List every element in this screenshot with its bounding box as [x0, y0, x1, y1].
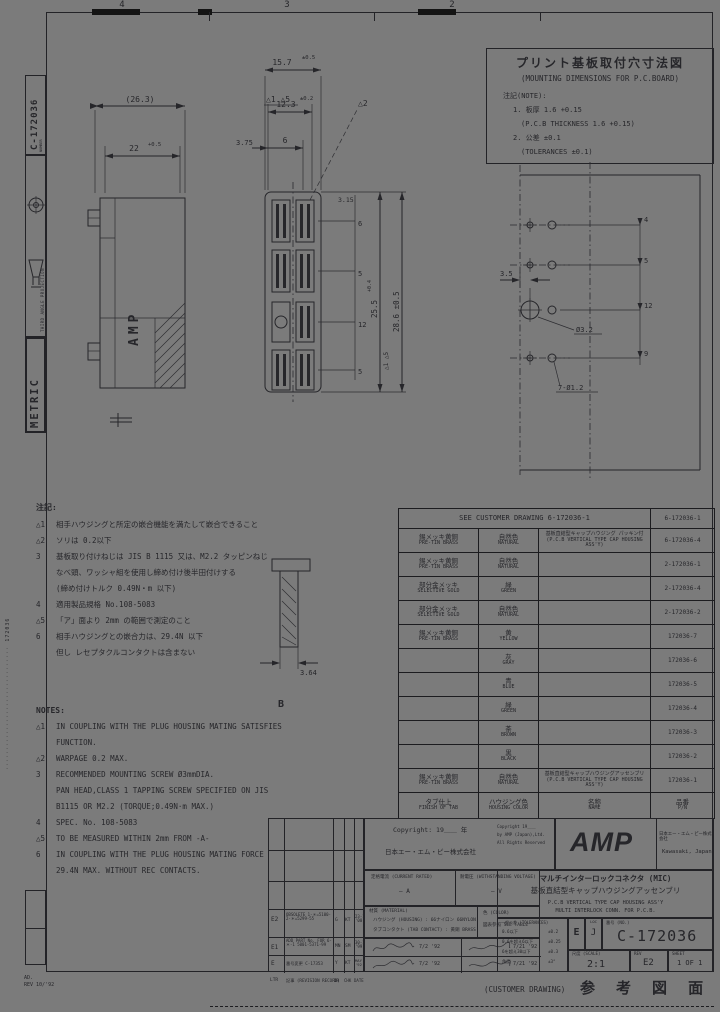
grid-col-3: 3: [281, 1, 293, 11]
copyright-cell: Copyright: 19＿＿ 年 日本エー・エム・ピー株式会社 Copyrig…: [364, 818, 555, 870]
svg-text:6: 6: [358, 220, 362, 228]
rev-desc: OBSOLETE 1-＊=5100- 2-＊=5299-55: [286, 913, 332, 922]
pcb-note-line1: 1. 板厚 1.6 +0.15: [513, 107, 582, 115]
pcb-note-title-jp: プリント基板取付穴寸法図: [487, 57, 713, 70]
svg-text:5: 5: [644, 257, 648, 265]
scale-label: 尺度 (SCALE): [572, 952, 601, 957]
title-en-1: P.C.B VERTICAL TYPE CAP HOUSING ASS'Y: [498, 901, 713, 907]
table-header-row: SEE CUSTOMER DRAWING 6-172036-1 6-172036…: [398, 509, 714, 529]
pcb-note-box: プリント基板取付穴寸法図 (MOUNTING DIMENSIONS FOR P.…: [486, 48, 714, 164]
tolerance-cell: 一般公差 (TOLERANCES) 0.6以下 ±0.2 0.6を超え6以下 ±…: [497, 918, 568, 972]
scale-value: 2:1: [587, 959, 605, 970]
tolerance-val: ±0.2: [548, 930, 558, 935]
rev-dr: MN: [335, 945, 340, 950]
table-row: 錫メッキ黄銅PRE-TIN BRASS 自然色NATURAL 基板直結型キャップ…: [398, 769, 714, 793]
edge-microfilm-code: ······························· 172036: [6, 230, 12, 770]
copyright-sub3: All Rights Reserved: [497, 841, 545, 846]
sheet-value: 1 OF 1: [677, 960, 702, 968]
rev-date-header: DATE: [354, 979, 364, 983]
dim-12-3: 12.3 ±0.2: [268, 96, 313, 190]
pcb-note-line2: (P.C.B THICKNESS 1.6 +0.15): [521, 121, 635, 129]
tolerance-row: 0.6以下: [502, 930, 518, 935]
loc-cell: LOC J: [585, 918, 602, 950]
svg-text:Ø3.2: Ø3.2: [576, 326, 593, 334]
connector-side-outline: AMP: [88, 198, 185, 388]
pcb-note-line3: 2. 公差 ±0.1: [513, 135, 561, 143]
loc-value: J: [586, 929, 601, 939]
plot-note-1: AD.: [24, 976, 33, 982]
svg-text:15.7: 15.7: [272, 58, 291, 67]
projection-label: THIRD ANGLE PROJECTION: [41, 162, 45, 332]
table-row: 灰GRAY 172036-6: [398, 649, 714, 673]
company-name-jp: 日本エー・エム・ピー株式会社: [659, 833, 713, 843]
svg-text:12.3: 12.3: [276, 100, 295, 109]
svg-text:22: 22: [129, 144, 139, 153]
rev-value: E2: [643, 959, 654, 969]
rev-ltr: E2: [271, 917, 278, 924]
table-row: 緑GREEN 172036-4: [398, 697, 714, 721]
svg-text:(26.3): (26.3): [126, 95, 155, 104]
copyright-sub2: by AMP (Japan),Ltd.: [497, 833, 545, 838]
amp-logo: AMP: [570, 828, 633, 858]
material-housing: ハウジング (HOUSING) : 66ナイロン 66NYLON: [373, 918, 476, 923]
metric-label: METRIC: [30, 340, 42, 428]
svg-text:7-Ø1.2: 7-Ø1.2: [558, 384, 583, 392]
view-front: 15.7 ±0.5 △1 △5 12.3 ±0.2 3.75 6 △2: [230, 50, 442, 480]
table-row: 青BLUE 172036-5: [398, 673, 714, 697]
notes-en-heading: NOTES:: [36, 706, 294, 715]
company-location: Kawasaki, Japan: [662, 849, 712, 855]
material-contact: タブコンタクト (TAB CONTACT) : 黄銅 BRASS: [373, 928, 476, 933]
number-cell: 番号 (NO.) C-172036: [602, 918, 714, 950]
drawing-number: C-172036: [617, 928, 697, 945]
svg-text:3.64: 3.64: [300, 669, 317, 677]
svg-text:±0.2: ±0.2: [300, 96, 313, 102]
rev-desc: 番号変更 C-17353: [286, 962, 323, 967]
pcb-note-label: 注記(NOTE):: [503, 93, 547, 101]
rev-chk: KT: [345, 962, 350, 967]
table-row: 錫メッキ黄銅PRE-TIN BRASS 自然色NATURAL 2-172036-…: [398, 553, 714, 577]
loc-label: LOC: [586, 920, 601, 924]
drawing-sheet: 4 3 2 C-172036 NUMBER THIRD ANGLE PROJEC…: [0, 0, 720, 1012]
dim-3-75: 3.75: [236, 139, 268, 151]
dim-15-7: 15.7 ±0.5: [265, 55, 321, 190]
rev-ltr: E1: [271, 945, 278, 952]
table-row: 茶BROWN 172036-3: [398, 721, 714, 745]
datum-symbol: [110, 413, 132, 427]
svg-text:6: 6: [283, 136, 288, 145]
rev-dr: G: [335, 919, 338, 924]
dim-6: 6: [268, 136, 303, 190]
copyright-sub1: Copyright 19＿＿: [497, 825, 536, 830]
table-footer-row: タブ仕上FINISH OF TAB ハウジング色HOUSING COLOR 名称…: [398, 793, 714, 819]
current-rating-label: 定格電流 (CURRENT RATED): [371, 875, 432, 880]
rev-dr: Y: [335, 962, 338, 967]
svg-text:+0.4: +0.4: [367, 280, 373, 292]
reference-drawing-label: 参 考 図 面: [580, 980, 709, 997]
table-row: 部分金メッキSELECTIVE GOLD 緑GREEN 2-172036-4: [398, 577, 714, 601]
bottom-dashed-line: [210, 1006, 714, 1007]
svg-text:5: 5: [358, 270, 362, 278]
revision-table: E2 OBSOLETE 1-＊=5100- 2-＊=5299-55 G KT 2…: [268, 818, 364, 972]
pitch-chain: 3.15 6 5 12 5: [318, 195, 366, 380]
material-label: 材質 (MATERIAL): [369, 909, 408, 914]
number-label: 番号 (NO.): [606, 921, 630, 926]
rev-desc: ADD PART No. FOR 6-＊-1 5001-5371-99: [286, 939, 332, 948]
parts-table: SEE CUSTOMER DRAWING 6-172036-1 6-172036…: [398, 508, 715, 819]
tolerance-row: 6を超え30以下: [502, 950, 531, 955]
svg-text:12: 12: [644, 302, 652, 310]
signature: [371, 959, 415, 971]
sheet-label: SHEET: [672, 952, 685, 957]
rev-ltr-header: LTR: [270, 979, 278, 984]
tolerance-row: 角度: [502, 960, 510, 965]
notes-jp-heading: 注記:: [36, 502, 294, 513]
svg-text:4: 4: [644, 216, 648, 224]
size-value: E: [569, 927, 584, 938]
pcb-note-title-en: (MOUNTING DIMENSIONS FOR P.C.BOARD): [487, 75, 713, 83]
copyright-line2: 日本エー・エム・ピー株式会社: [385, 849, 476, 856]
tolerance-val: ±0.3: [548, 950, 558, 955]
pcb-holes: [510, 218, 570, 365]
svg-text:9: 9: [644, 350, 648, 358]
number-label: NUMBER: [40, 122, 44, 152]
rev-desc-header: 記事 (REVISION RECORD): [286, 979, 340, 984]
svg-text:3.15: 3.15: [338, 196, 354, 204]
current-rating-value: ― A: [399, 889, 410, 896]
dim-22: 22 +0.5: [105, 142, 180, 193]
title-jp-1: マルチインターロックコネクタ (MIC): [498, 875, 713, 883]
title-en-2: MULTI INTERLOCK CONN. FOR P.C.B.: [498, 909, 713, 915]
view-pcb-pattern: 4 5 12 9 3.5 Ø3.2 7-Ø1.2: [490, 160, 714, 480]
svg-text:12: 12: [358, 321, 366, 329]
svg-text:3.5: 3.5: [500, 270, 513, 278]
svg-text:28.6 ±0.5: 28.6 ±0.5: [392, 291, 401, 332]
grid-tick: [209, 12, 210, 21]
scale-cell: 尺度 (SCALE) 2:1: [568, 950, 630, 972]
amp-molded-text: AMP: [127, 311, 142, 346]
label-holes-1-2: 7-Ø1.2: [554, 362, 598, 392]
signature: [371, 942, 415, 954]
leader-flag-2: △2: [310, 99, 368, 200]
svg-text:±0.5: ±0.5: [302, 55, 315, 61]
title-jp-2: 基板直結型キャップハウジングアッセンブリ: [498, 887, 713, 895]
table-row: 錫メッキ黄銅PRE-TIN BRASS 黄YELLOW 172036-7: [398, 625, 714, 649]
plot-note-2: REV 10/'92: [24, 983, 54, 989]
hatch-area: [155, 303, 185, 388]
pcb-note-line4: (TOLERANCES ±0.1): [521, 149, 593, 157]
svg-text:△2: △2: [358, 99, 368, 108]
notes-english: NOTES: △1IN COUPLING WITH THE PLUG HOUSI…: [36, 706, 294, 879]
grid-tick: [374, 12, 375, 21]
svg-text:25.5: 25.5: [370, 300, 379, 318]
rev-chk: KT: [345, 919, 350, 924]
rev-chk: SM: [345, 945, 350, 950]
sheet-cell: SHEET 1 OF 1: [668, 950, 714, 972]
notes-japanese: 注記: △1相手ハウジングと所定の嵌合機能を満たして嵌合できること △2ソリは …: [36, 502, 294, 661]
drawing-title-cell: マルチインターロックコネクタ (MIC) 基板直結型キャップハウジングアッセンブ…: [497, 870, 714, 918]
rev-cell: REV E2: [630, 950, 668, 972]
grid-tick: [540, 12, 541, 21]
tolerance-row: 0.6を超え6以下: [502, 940, 533, 945]
dim-28-6: 28.6 ±0.5: [392, 192, 405, 392]
dim-26-3: (26.3): [95, 95, 185, 193]
signature-date: 7/2 '92: [419, 945, 440, 951]
rev-dr-header: DR: [334, 979, 339, 984]
rev-label: REV: [634, 952, 642, 957]
rev-ltr: E: [271, 961, 275, 968]
tolerance-val: ±3°: [548, 960, 556, 965]
svg-text:5: 5: [358, 368, 362, 376]
registration-mark: [92, 9, 140, 15]
size-cell: E: [568, 918, 585, 950]
rev-chk-header: CHK: [344, 979, 351, 983]
table-row: 黒BLACK 172036-2: [398, 745, 714, 769]
plot-stamp-divider: [25, 928, 46, 929]
table-row: 錫メッキ黄銅PRE-TIN BRASS 自然色NATURAL 基板直結型キャップ…: [398, 529, 714, 553]
svg-text:3.75: 3.75: [236, 139, 253, 147]
customer-drawing-label: (CUSTOMER DRAWING): [484, 986, 565, 994]
svg-text:△1 △5: △1 △5: [383, 352, 390, 370]
label-hole-3-2: Ø3.2: [538, 317, 602, 334]
amp-logo-cell: AMP 日本エー・エム・ピー株式会社 Kawasaki, Japan: [555, 818, 714, 870]
signature-date: 7/2 '92: [419, 962, 440, 968]
tolerance-val: ±0.25: [548, 940, 561, 945]
table-row: 部分金メッキSELECTIVE GOLD 自然色NATURAL 2-172036…: [398, 601, 714, 625]
tolerance-label: 一般公差 (TOLERANCES): [501, 921, 548, 925]
copyright-line1: Copyright: 19＿＿ 年: [393, 827, 467, 834]
pcb-pitch-chain: 4 5 12 9: [560, 216, 652, 365]
dim-3-5: 3.5: [500, 270, 550, 318]
svg-text:+0.5: +0.5: [148, 142, 161, 148]
registration-mark: [418, 9, 456, 15]
